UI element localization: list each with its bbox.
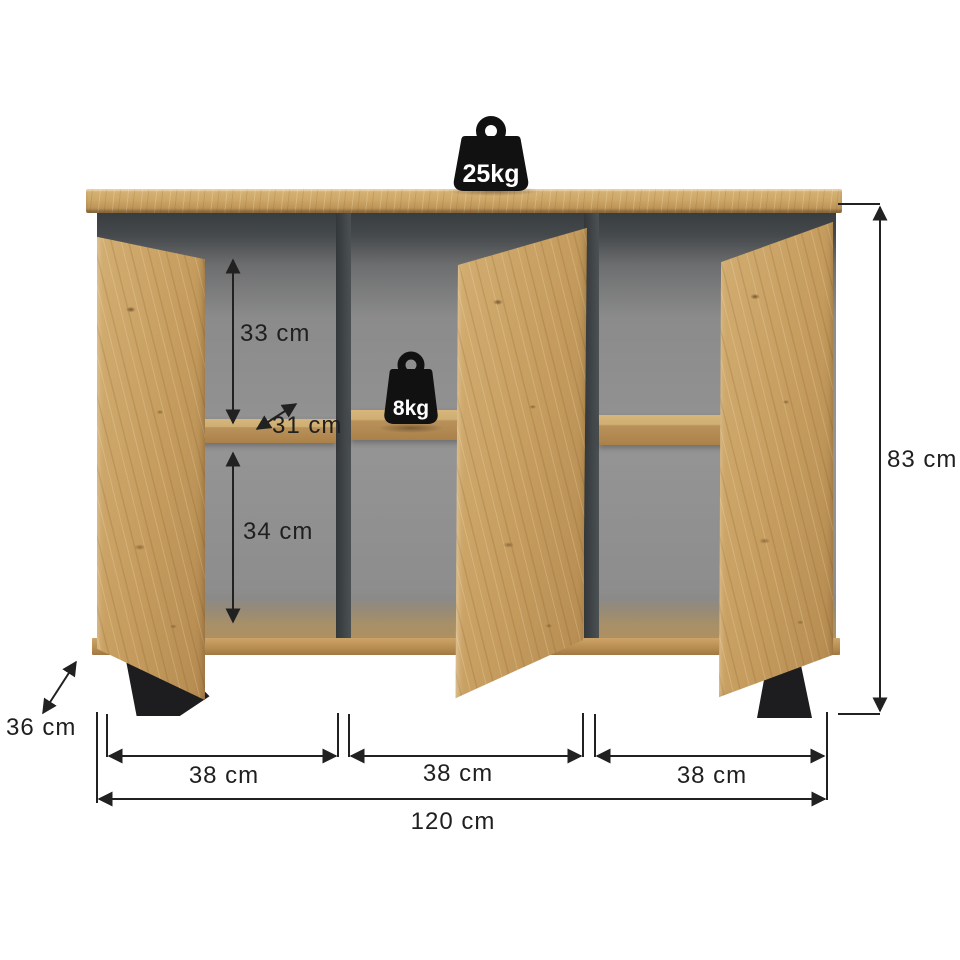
max-load-top-label: 25kg	[463, 160, 520, 188]
dim-overall-depth: 36 cm	[6, 714, 76, 742]
door-middle-open	[455, 226, 589, 702]
dim-upper-compartment-height: 33 cm	[240, 320, 310, 348]
product-dimension-diagram: 25kg 8kg	[0, 0, 960, 960]
max-load-top-weight-icon: 25kg	[449, 116, 533, 194]
dim-middle-section-width: 38 cm	[418, 760, 498, 788]
dim-lower-compartment-height: 34 cm	[243, 518, 313, 546]
dim-overall-width: 120 cm	[403, 808, 503, 836]
door-left-open	[95, 235, 207, 701]
max-load-shelf-weight-icon: 8kg	[381, 351, 441, 427]
dim-shelf-depth: 31 cm	[272, 412, 342, 440]
dim-right-section-width: 38 cm	[672, 762, 752, 790]
dim-left-section-width: 38 cm	[184, 762, 264, 790]
max-load-shelf-label: 8kg	[393, 397, 429, 420]
dim-overall-height: 83 cm	[887, 446, 957, 474]
door-right-open	[717, 220, 836, 699]
